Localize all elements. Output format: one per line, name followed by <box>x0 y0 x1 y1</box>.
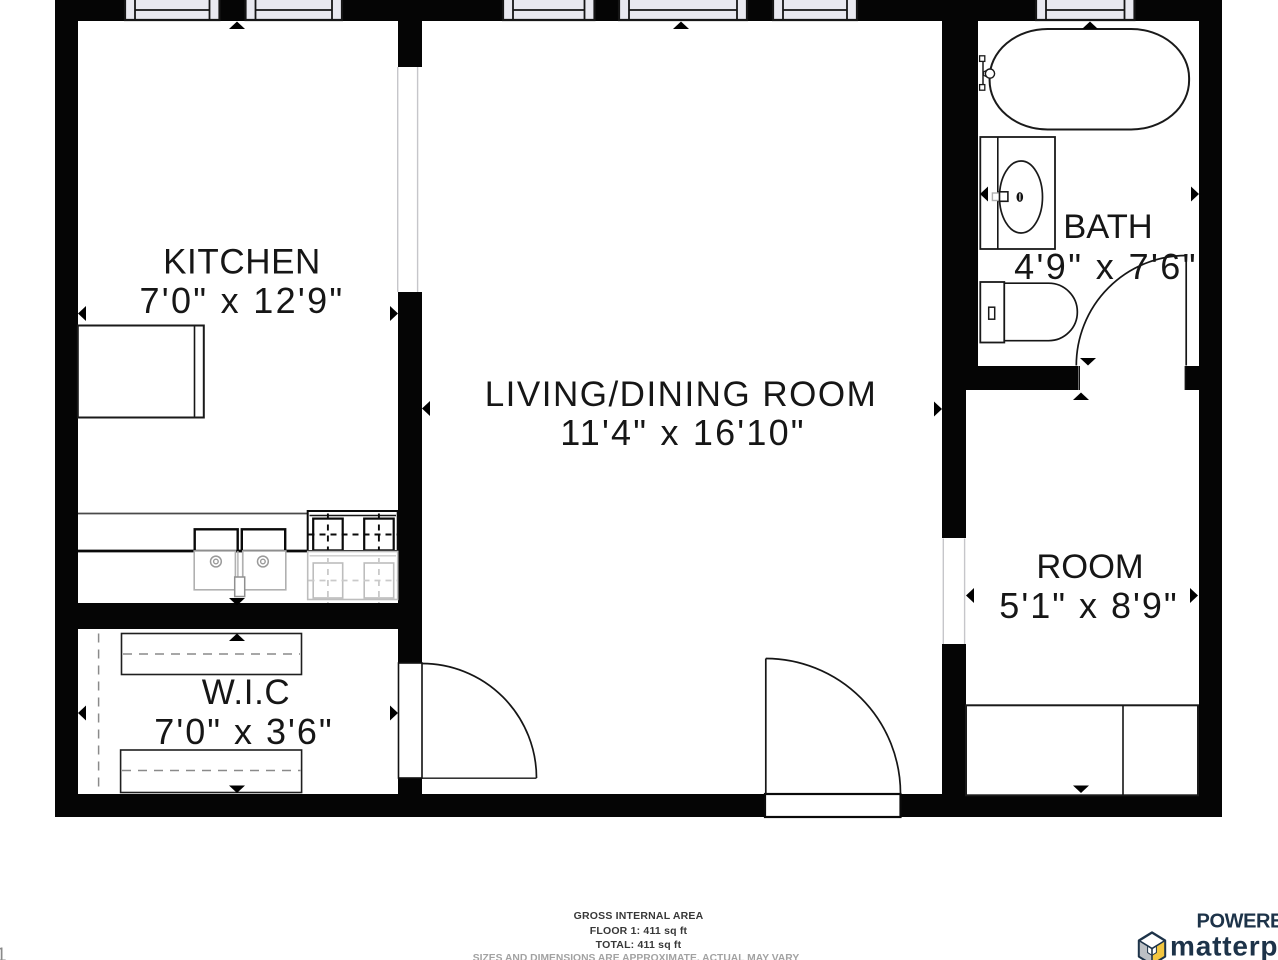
svg-text:matterport: matterport <box>1170 931 1278 960</box>
svg-text:BATH: BATH <box>1063 208 1152 246</box>
svg-text:POWERED: POWERED <box>1197 910 1278 932</box>
svg-text:LIVING/DINING ROOM: LIVING/DINING ROOM <box>485 375 878 414</box>
svg-text:KITCHEN: KITCHEN <box>163 243 321 282</box>
svg-text:5'1" x 8'9": 5'1" x 8'9" <box>999 585 1178 626</box>
svg-text:W.I.C: W.I.C <box>202 673 291 712</box>
svg-text:4'9" x 7'6": 4'9" x 7'6" <box>1014 246 1198 287</box>
svg-text:ROOM: ROOM <box>1036 548 1143 586</box>
svg-text:11'4" x 16'10": 11'4" x 16'10" <box>560 412 806 453</box>
svg-text:7'0" x 12'9": 7'0" x 12'9" <box>139 280 344 321</box>
svg-text:SIZES AND DIMENSIONS ARE APPRO: SIZES AND DIMENSIONS ARE APPROXIMATE, AC… <box>473 953 800 960</box>
svg-text:TOTAL: 411 sq ft: TOTAL: 411 sq ft <box>596 939 682 951</box>
svg-text:7'0" x 3'6": 7'0" x 3'6" <box>154 711 333 752</box>
svg-text:FLOOR 1: 411 sq ft: FLOOR 1: 411 sq ft <box>590 925 688 937</box>
svg-text:1: 1 <box>0 945 7 960</box>
svg-text:GROSS INTERNAL AREA: GROSS INTERNAL AREA <box>574 910 704 922</box>
